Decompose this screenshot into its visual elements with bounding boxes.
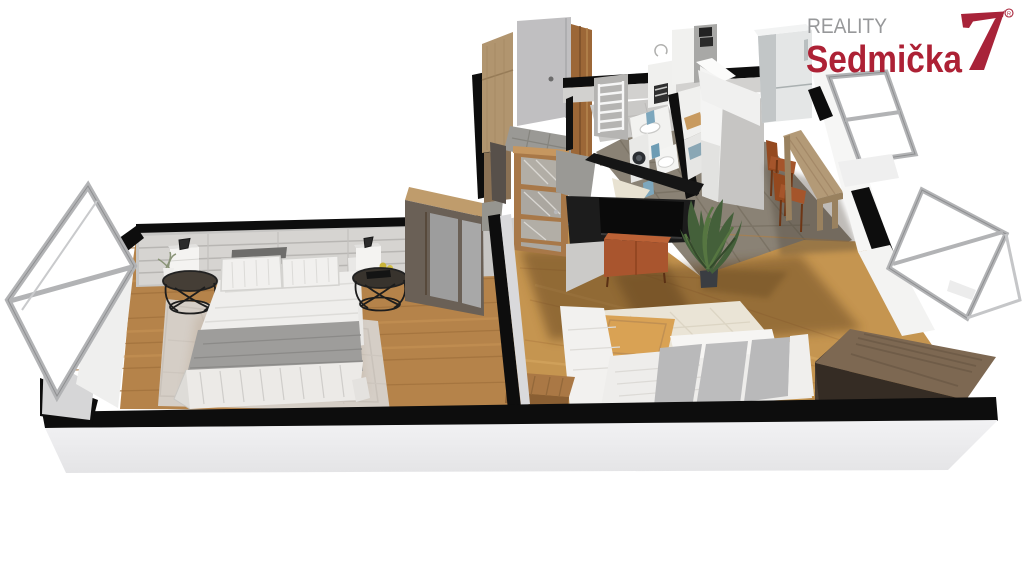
svg-text:R: R <box>1007 12 1011 18</box>
svg-text:REALITY: REALITY <box>807 15 887 38</box>
svg-text:Sedmička: Sedmička <box>806 39 963 81</box>
